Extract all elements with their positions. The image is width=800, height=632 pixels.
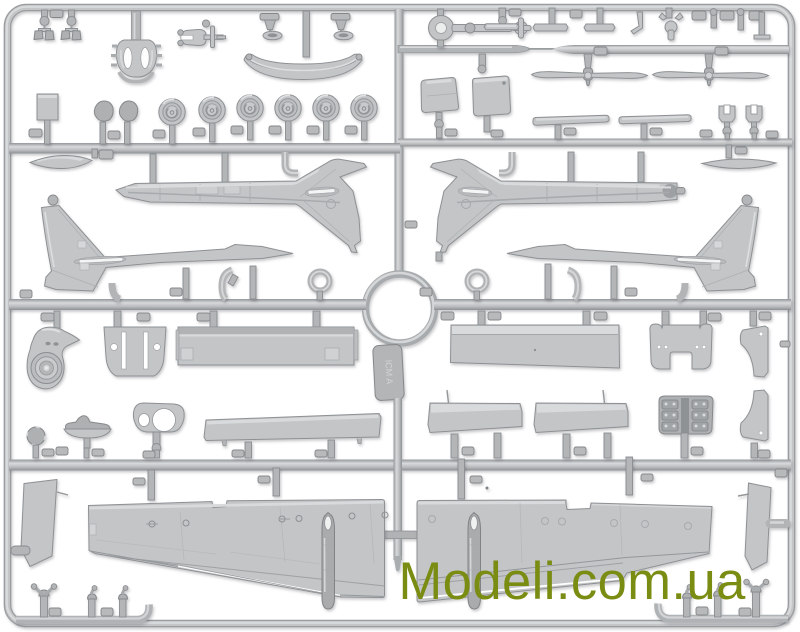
svg-text:Modeli.com.ua: Modeli.com.ua [399, 552, 747, 611]
svg-text:ICM A: ICM A [383, 359, 394, 384]
